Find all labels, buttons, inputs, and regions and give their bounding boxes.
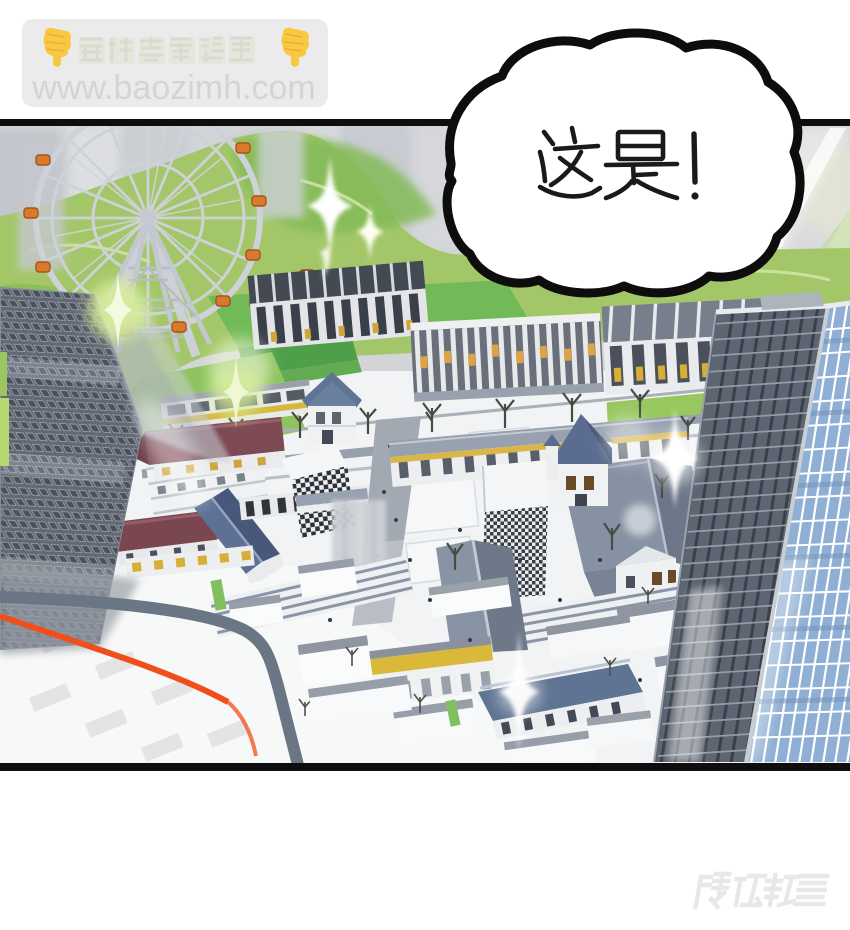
svg-text:www.baozimh.com: www.baozimh.com	[31, 69, 315, 107]
